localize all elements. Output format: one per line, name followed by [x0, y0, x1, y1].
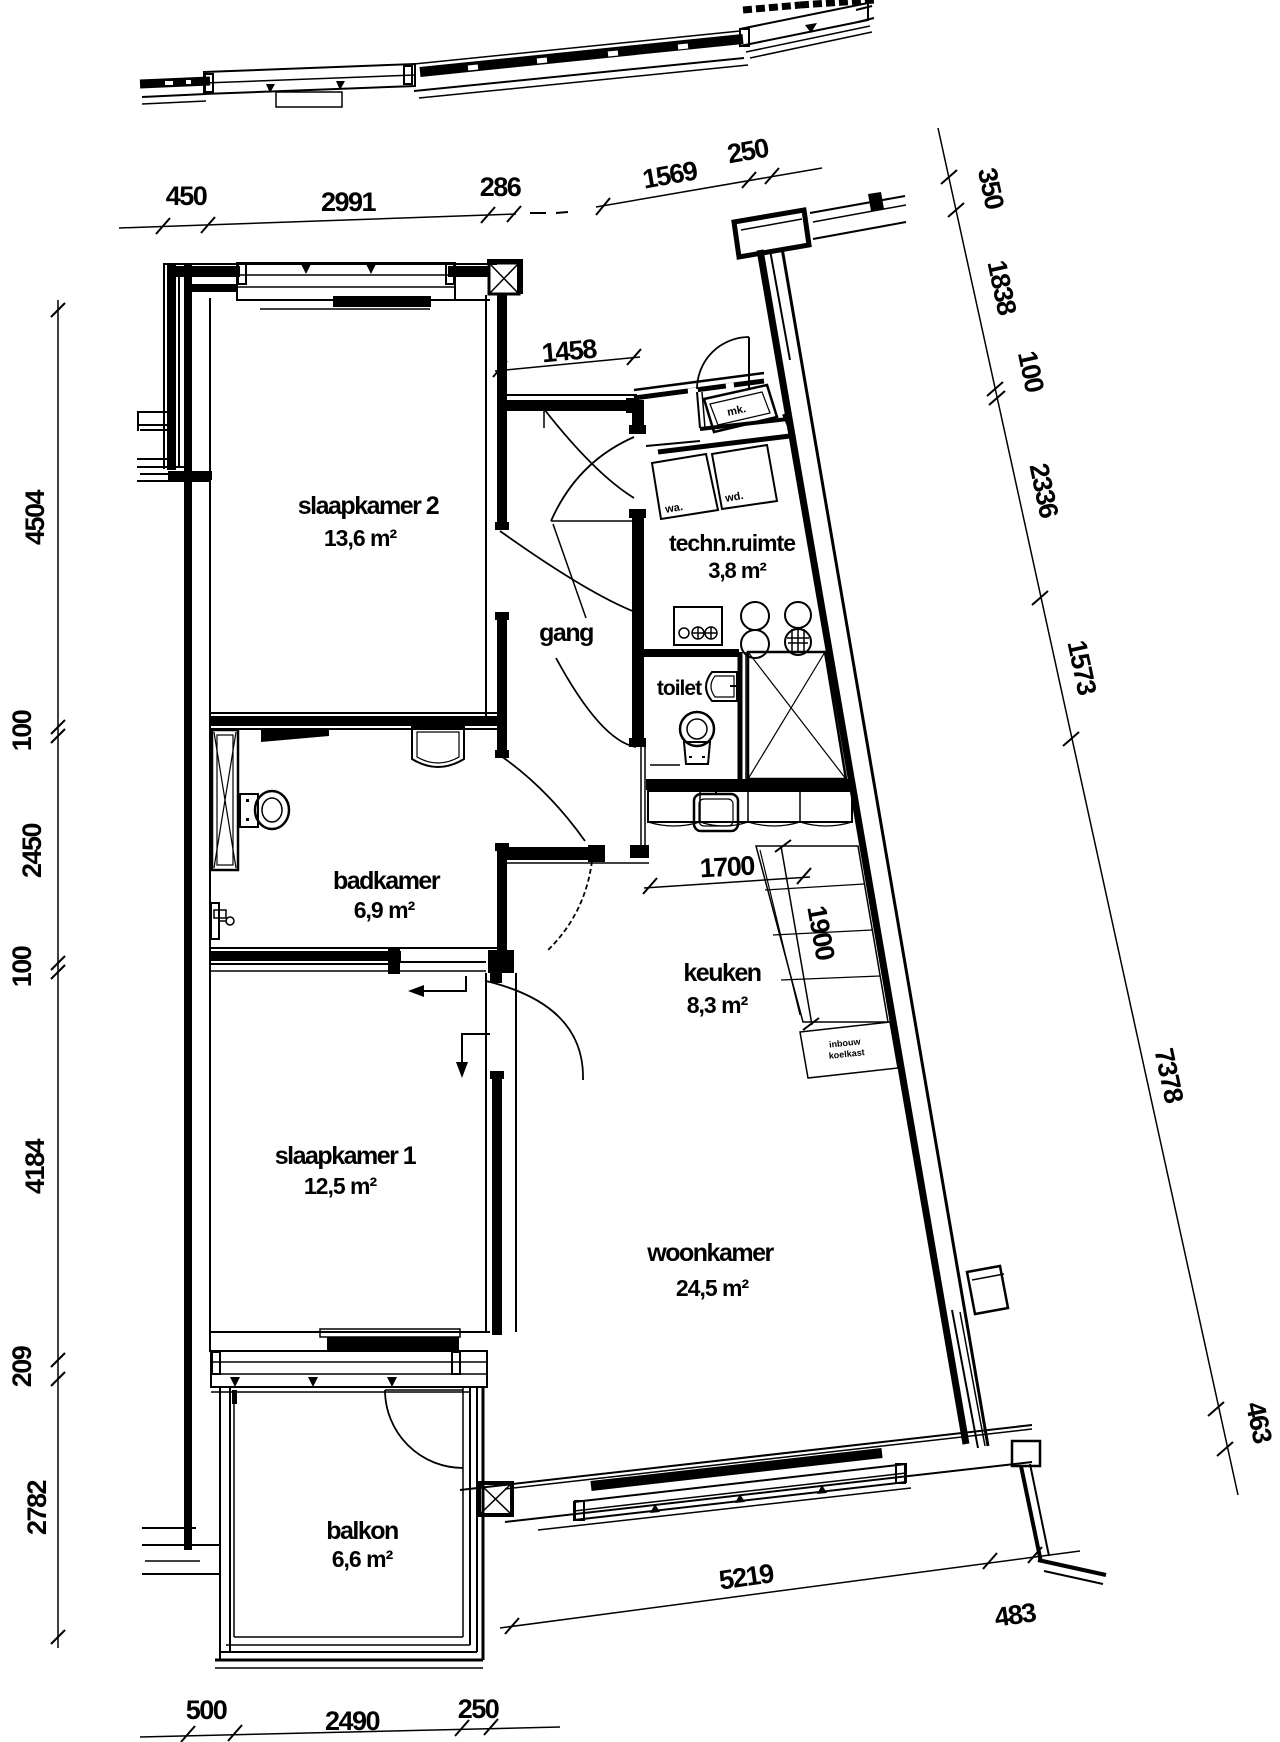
- svg-text:gang: gang: [539, 619, 593, 647]
- svg-text:toilet: toilet: [657, 677, 702, 700]
- svg-text:badkamer: badkamer: [333, 867, 441, 895]
- svg-text:450: 450: [166, 181, 207, 211]
- svg-text:100: 100: [7, 710, 37, 751]
- svg-text:209: 209: [7, 1345, 37, 1387]
- svg-text:483: 483: [993, 1597, 1039, 1633]
- svg-text:286: 286: [480, 172, 522, 202]
- svg-text:500: 500: [186, 1695, 227, 1725]
- svg-text:balkon: balkon: [326, 1517, 398, 1545]
- svg-text:24,5 m²: 24,5 m²: [676, 1275, 750, 1301]
- svg-text:100: 100: [7, 946, 37, 987]
- svg-text:6,6 m²: 6,6 m²: [332, 1546, 394, 1572]
- svg-text:slaapkamer 2: slaapkamer 2: [298, 492, 439, 520]
- svg-text:2782: 2782: [22, 1480, 52, 1535]
- svg-text:12,5 m²: 12,5 m²: [304, 1173, 378, 1199]
- svg-text:250: 250: [458, 1694, 499, 1724]
- svg-text:2450: 2450: [17, 823, 47, 878]
- svg-text:1458: 1458: [540, 334, 598, 369]
- svg-text:4184: 4184: [20, 1138, 50, 1194]
- svg-text:8,3 m²: 8,3 m²: [687, 992, 749, 1018]
- svg-text:keuken: keuken: [683, 959, 760, 987]
- svg-text:techn.ruimte: techn.ruimte: [669, 530, 795, 556]
- svg-text:slaapkamer 1: slaapkamer 1: [275, 1142, 417, 1170]
- svg-text:3,8 m²: 3,8 m²: [708, 558, 766, 583]
- svg-text:2490: 2490: [325, 1706, 380, 1736]
- svg-text:4504: 4504: [20, 489, 50, 545]
- svg-text:13,6 m²: 13,6 m²: [324, 525, 398, 551]
- svg-text:1700: 1700: [699, 851, 755, 884]
- svg-text:woonkamer: woonkamer: [646, 1239, 774, 1267]
- svg-text:6,9 m²: 6,9 m²: [354, 897, 416, 923]
- svg-text:2991: 2991: [321, 187, 377, 217]
